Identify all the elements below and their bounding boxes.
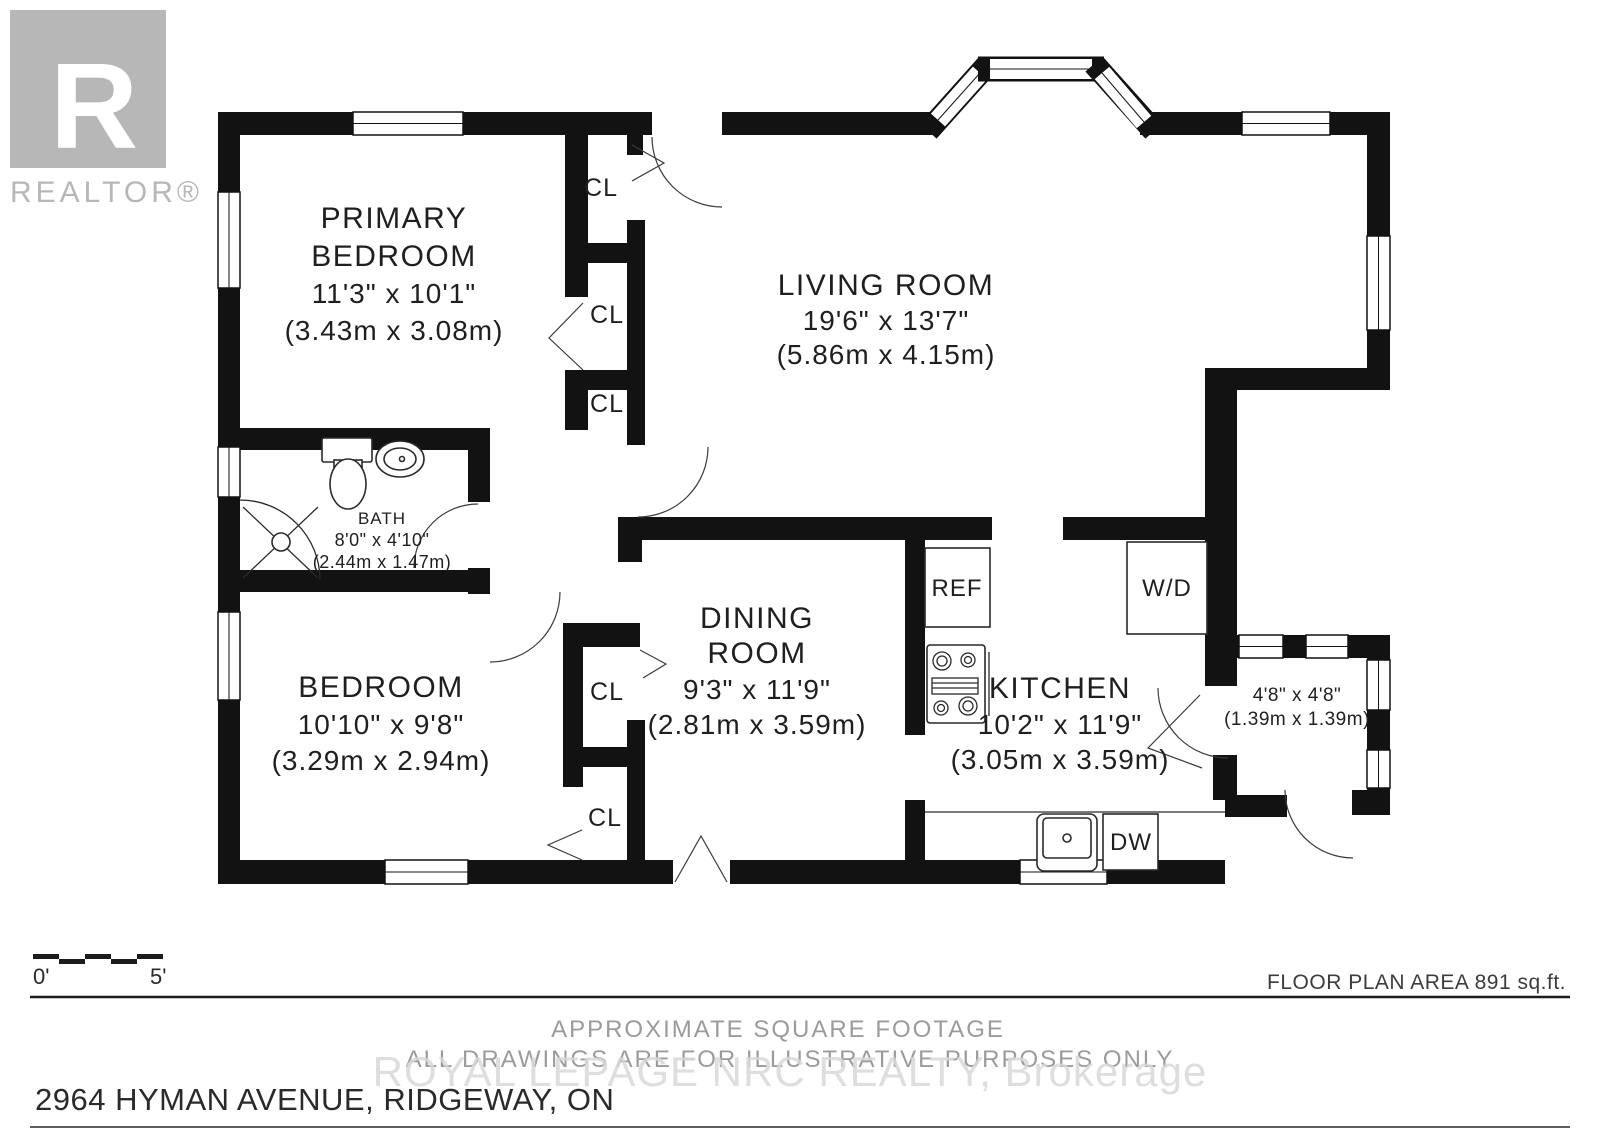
closet-door-mark xyxy=(640,650,666,678)
window xyxy=(1306,635,1348,658)
bath-label: BATH xyxy=(358,509,406,528)
bay-window xyxy=(928,64,1154,131)
scale-segment xyxy=(111,959,137,964)
hall-door-arc xyxy=(638,447,708,517)
living-room-dim: (5.86m x 4.15m) xyxy=(777,339,996,370)
scale-segment xyxy=(137,954,163,959)
nook-exterior-door-arc xyxy=(1285,790,1353,858)
refrigerator-label: REF xyxy=(932,575,983,602)
living-room-label: LIVING ROOM xyxy=(778,269,995,302)
closet-label: CL xyxy=(590,390,624,418)
footer: FLOOR PLAN AREA 891 sq.ft. APPROXIMATE S… xyxy=(30,971,1570,1127)
realtor-logo-icon: R REALTOR® xyxy=(10,10,203,209)
living-room-dim: 19'6" x 13'7" xyxy=(803,305,970,336)
dining-room-dim: 9'3" x 11'9" xyxy=(683,674,831,705)
closet-label: CL xyxy=(588,804,622,832)
wall xyxy=(1237,368,1390,390)
primary-bedroom-label: BEDROOM xyxy=(311,240,477,273)
realtor-logo-text: REALTOR® xyxy=(10,176,203,209)
wall xyxy=(565,112,588,297)
closet-label: CL xyxy=(590,301,624,329)
scale-segment xyxy=(59,959,85,964)
floor-plan-canvas: R REALTOR® xyxy=(0,0,1600,1131)
dining-double-door-mark xyxy=(675,836,727,882)
wall xyxy=(722,112,932,135)
bedroom-label: BEDROOM xyxy=(298,671,464,704)
scale-bar: 0' 5' xyxy=(33,954,166,989)
kitchen-label: KITCHEN xyxy=(989,672,1131,705)
wall xyxy=(618,517,992,540)
nook-dim: 4'8" x 4'8" xyxy=(1253,685,1342,706)
wall xyxy=(905,800,925,884)
wall xyxy=(1213,755,1237,800)
dining-room-label: ROOM xyxy=(707,637,806,670)
window xyxy=(353,112,463,135)
bath-dim: (2.44m x 1.47m) xyxy=(313,552,452,572)
dining-room-dim: (2.81m x 3.59m) xyxy=(648,709,867,740)
wall xyxy=(590,112,652,135)
wall xyxy=(618,517,642,562)
window xyxy=(218,192,240,288)
window xyxy=(1239,635,1283,658)
toilet-bowl xyxy=(330,459,366,509)
closet-door-mark xyxy=(548,830,582,860)
dining-room-label: DINING xyxy=(700,602,814,635)
scale-segment xyxy=(85,954,111,959)
wall xyxy=(627,720,645,870)
floor-plan-area-label: FLOOR PLAN AREA 891 sq.ft. xyxy=(1267,971,1566,994)
wall xyxy=(468,428,490,502)
scale-start-label: 0' xyxy=(33,964,49,989)
bath-sink-drain xyxy=(400,457,405,462)
closet-door-mark xyxy=(549,303,583,370)
bath-dim: 8'0" x 4'10" xyxy=(335,530,430,550)
wall xyxy=(565,370,627,390)
wall xyxy=(627,135,643,155)
bedroom-door-arc xyxy=(490,592,560,662)
wall xyxy=(563,623,640,647)
primary-bedroom-label: PRIMARY xyxy=(321,202,468,235)
dishwasher-label: DW xyxy=(1110,829,1152,856)
nook-dim: (1.39m x 1.39m) xyxy=(1224,709,1370,730)
kitchen-dim: (3.05m x 3.59m) xyxy=(951,744,1170,775)
front-door-arc xyxy=(652,137,722,207)
shower-drain xyxy=(272,533,290,551)
window xyxy=(1242,112,1330,135)
wall xyxy=(1063,517,1237,540)
primary-bedroom-dim: (3.43m x 3.08m) xyxy=(285,315,504,346)
closet-label: CL xyxy=(590,678,624,706)
scale-segment xyxy=(33,954,59,959)
window xyxy=(385,860,468,884)
realtor-logo-letter: R xyxy=(50,38,138,174)
stove xyxy=(927,645,985,723)
wall xyxy=(1352,790,1390,815)
footer-note: APPROXIMATE SQUARE FOOTAGE xyxy=(551,1016,1005,1043)
wall xyxy=(905,540,925,735)
kitchen-dim: 10'2" x 11'9" xyxy=(978,709,1142,740)
window xyxy=(1367,236,1390,330)
primary-bedroom-dim: 11'3" x 10'1" xyxy=(312,278,476,309)
kitchen-sink-drain xyxy=(1063,834,1071,842)
address-label: 2964 HYMAN AVENUE, RIDGEWAY, ON xyxy=(35,1082,614,1117)
window xyxy=(1367,660,1390,710)
wall xyxy=(1367,112,1390,238)
floor-plan-page: R REALTOR® xyxy=(0,0,1600,1131)
washer-dryer-label: W/D xyxy=(1142,575,1192,602)
bedroom-dim: (3.29m x 2.94m) xyxy=(272,745,491,776)
closet-label: CL xyxy=(584,174,618,202)
wall xyxy=(468,568,490,594)
wall xyxy=(218,570,470,592)
scale-end-label: 5' xyxy=(150,964,166,989)
bedroom-dim: 10'10" x 9'8" xyxy=(298,709,465,740)
wall xyxy=(627,220,645,445)
window xyxy=(218,612,240,700)
window xyxy=(1367,750,1390,788)
wall xyxy=(576,747,630,767)
window xyxy=(218,447,240,497)
